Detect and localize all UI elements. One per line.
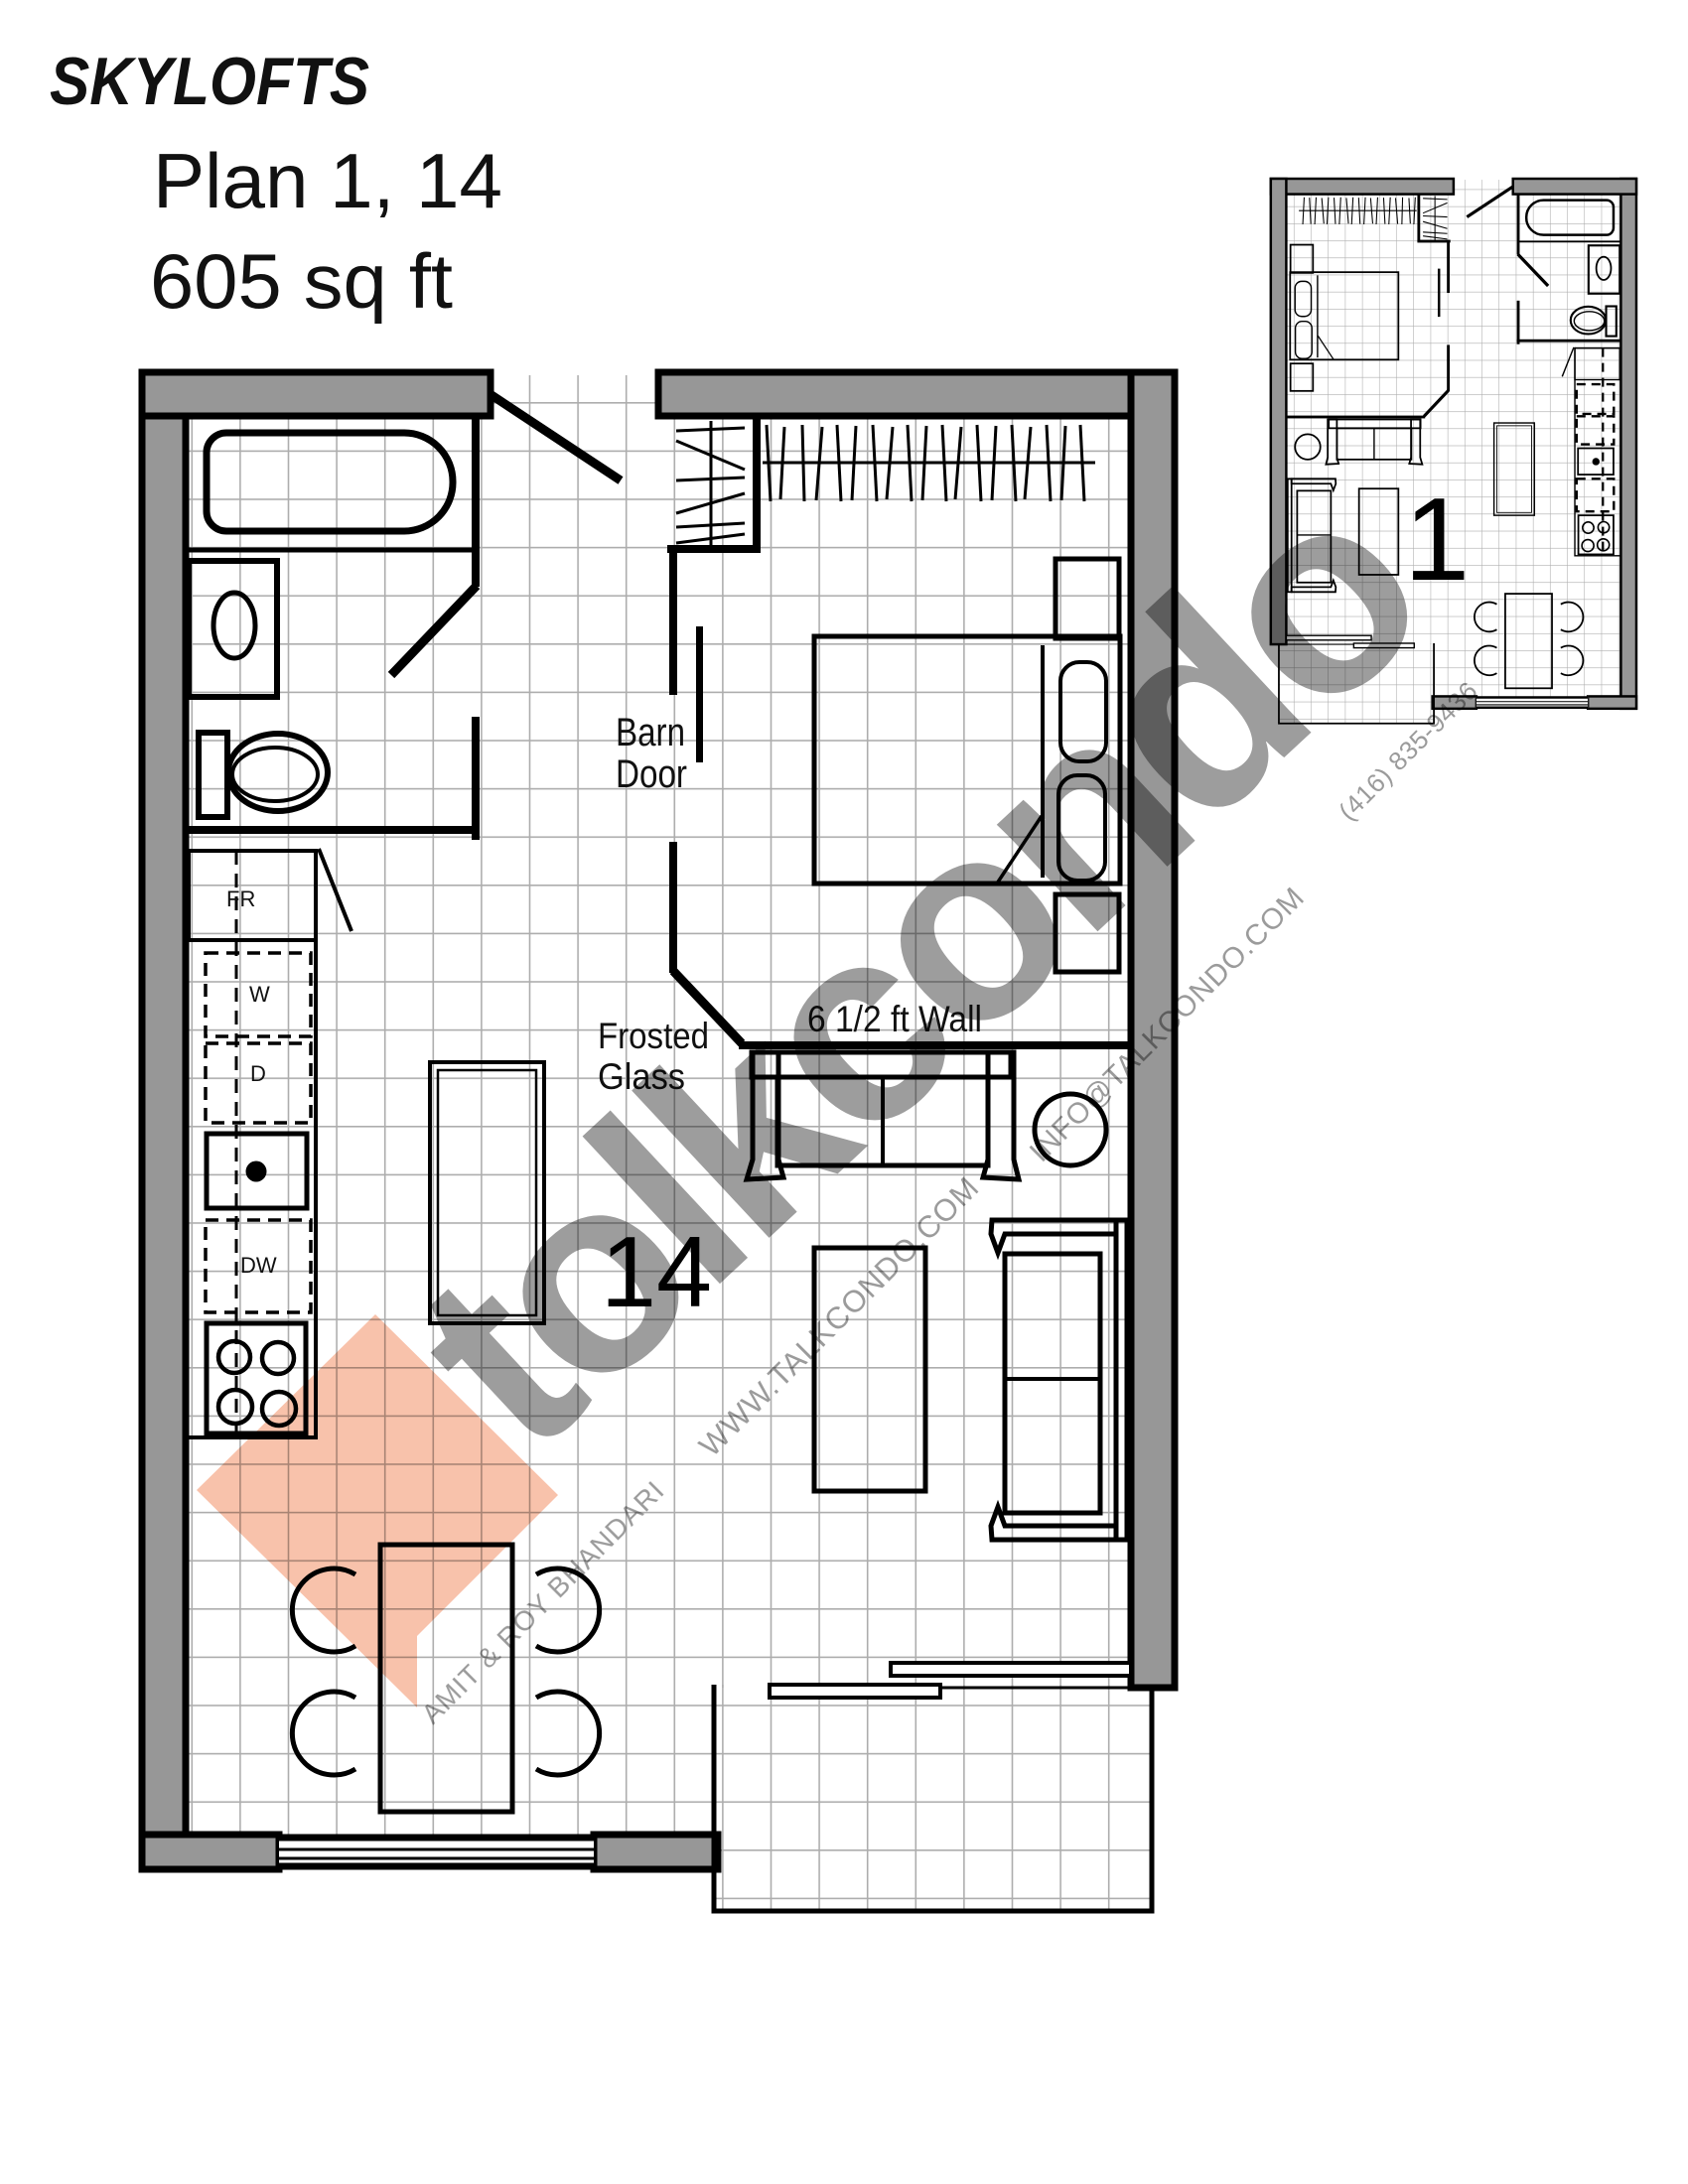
svg-text:W: W [249,982,270,1007]
svg-text:Barn: Barn [616,711,685,754]
svg-text:DW: DW [240,1253,277,1278]
svg-text:Door: Door [616,752,687,796]
svg-text:SKYLOFTS: SKYLOFTS [50,44,369,119]
svg-text:Plan 1, 14: Plan 1, 14 [153,137,502,224]
svg-text:605 sq ft: 605 sq ft [150,237,453,325]
svg-text:D: D [250,1061,266,1086]
svg-text:1: 1 [1404,474,1470,606]
svg-text:FR: FR [226,887,255,911]
